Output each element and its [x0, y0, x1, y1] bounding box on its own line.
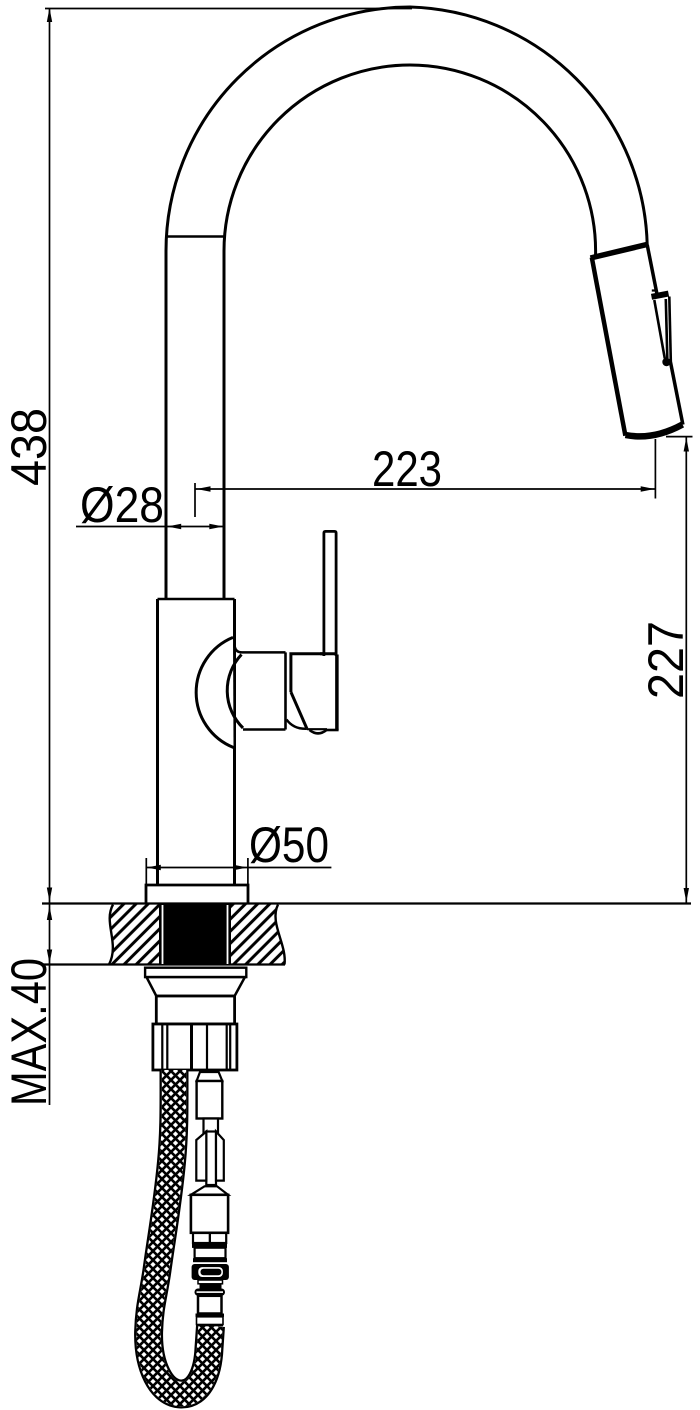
svg-text:Ø50: Ø50 [249, 817, 329, 873]
svg-text:Ø28: Ø28 [80, 477, 164, 533]
svg-text:223: 223 [372, 441, 442, 497]
svg-text:438: 438 [1, 408, 57, 486]
svg-text:227: 227 [638, 621, 694, 699]
svg-text:MAX.40: MAX.40 [1, 958, 57, 1106]
